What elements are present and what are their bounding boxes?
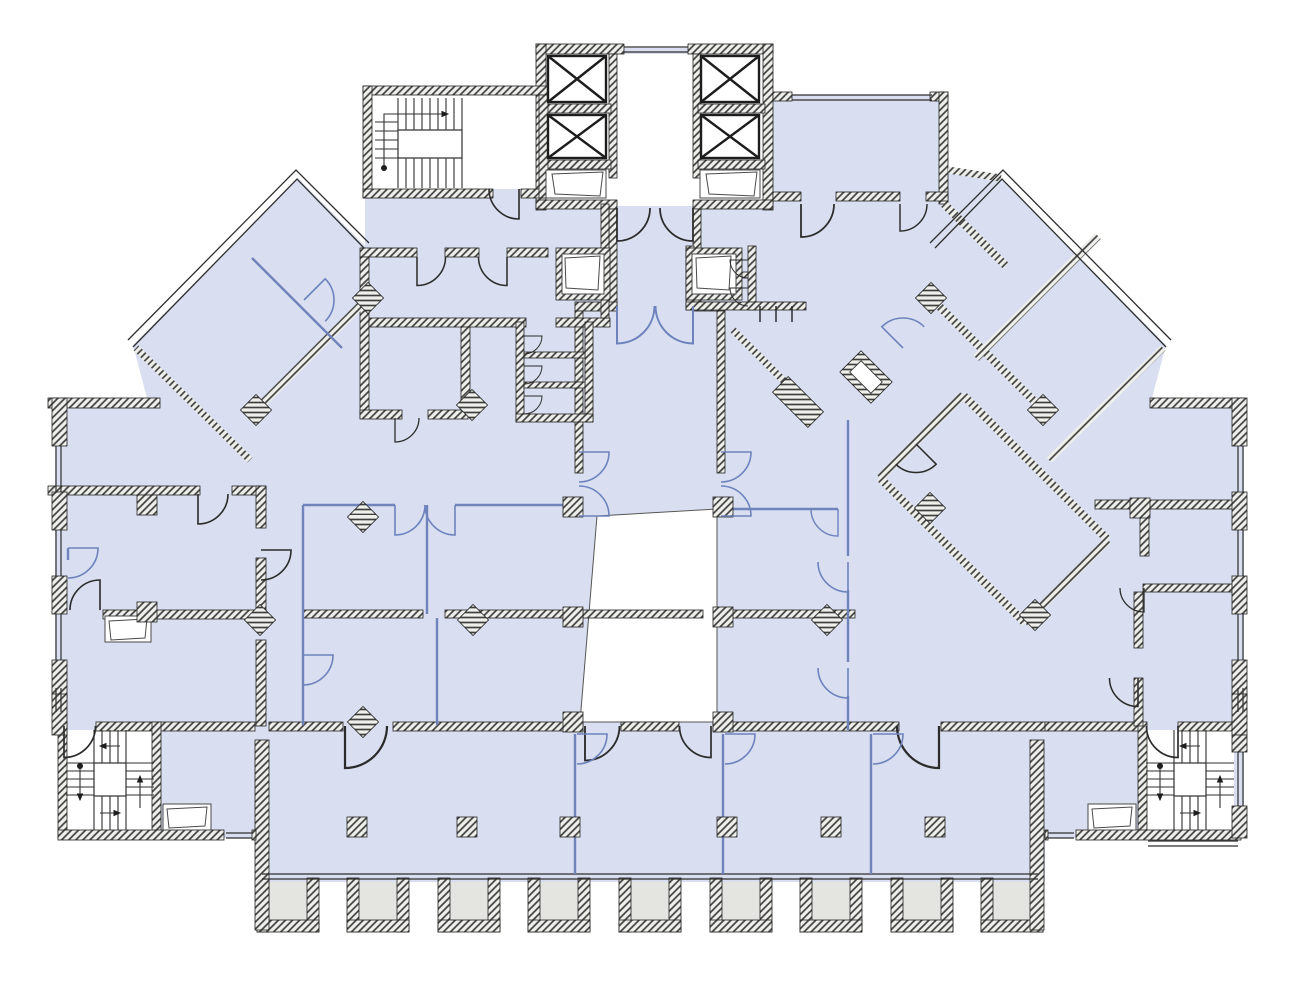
column bbox=[1130, 498, 1150, 518]
column bbox=[821, 817, 841, 837]
balcony bbox=[631, 882, 669, 920]
balcony bbox=[722, 882, 760, 920]
column bbox=[563, 607, 583, 627]
balcony bbox=[993, 882, 1031, 920]
column bbox=[347, 817, 367, 837]
column bbox=[137, 495, 157, 515]
floor-plan-canvas bbox=[0, 0, 1299, 994]
column bbox=[925, 817, 945, 837]
balcony bbox=[450, 882, 488, 920]
column bbox=[563, 497, 583, 517]
balcony bbox=[540, 882, 578, 920]
balcony bbox=[359, 882, 397, 920]
column bbox=[717, 817, 737, 837]
balcony bbox=[269, 882, 307, 920]
balcony bbox=[903, 882, 941, 920]
balcony bbox=[812, 882, 850, 920]
column bbox=[457, 817, 477, 837]
column bbox=[563, 712, 583, 732]
balconies bbox=[257, 878, 1043, 932]
column bbox=[713, 497, 733, 517]
column bbox=[560, 817, 580, 837]
floor-plan-drawing bbox=[0, 0, 1299, 994]
column bbox=[137, 602, 157, 622]
balcony-floors bbox=[269, 882, 1031, 920]
column bbox=[713, 712, 733, 732]
column bbox=[713, 607, 733, 627]
